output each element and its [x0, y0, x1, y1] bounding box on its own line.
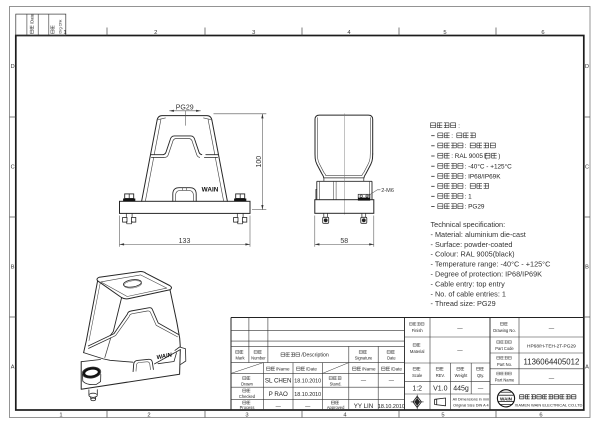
svg-text:: -40°C - +125°C: : -40°C - +125°C — [465, 162, 513, 170]
svg-text:Number: Number — [251, 355, 266, 360]
svg-text:A: A — [585, 365, 589, 371]
svg-text:C: C — [11, 165, 15, 171]
svg-text:—: — — [276, 404, 282, 410]
svg-text:Part No.: Part No. — [497, 362, 512, 367]
svg-text:—: — — [389, 378, 395, 384]
svg-text:6: 6 — [541, 30, 544, 36]
svg-text:PG29: PG29 — [176, 104, 194, 111]
svg-text:- Temperature range: -40°C: - Temperature range: -40°C - +125°C — [431, 260, 551, 269]
svg-text:/Name: /Name — [276, 367, 290, 372]
svg-text:2: 2 — [147, 413, 150, 419]
svg-text:/Date: /Date — [306, 367, 317, 372]
svg-text:133: 133 — [179, 238, 191, 245]
svg-text:- Colour: RAL 9005(black): - Colour: RAL 9005(black) — [431, 250, 515, 259]
svg-text:Qty.: Qty. — [477, 373, 484, 378]
svg-text:Signature: Signature — [355, 355, 373, 360]
svg-text:- No. of cable entries: 1: - No. of cable entries: 1 — [431, 289, 506, 298]
svg-text:D: D — [11, 64, 15, 70]
svg-text:100: 100 — [256, 156, 263, 168]
svg-text:/Date: /Date — [30, 13, 35, 24]
svg-text:5: 5 — [441, 413, 444, 419]
svg-text:Part Code: Part Code — [495, 346, 514, 351]
svg-text:C: C — [585, 165, 589, 171]
svg-text:Finish: Finish — [412, 328, 424, 333]
svg-text:—: — — [478, 386, 484, 392]
svg-text:—: — — [361, 378, 367, 384]
svg-text:Part Name: Part Name — [495, 378, 515, 383]
svg-text:Date: Date — [387, 355, 396, 360]
svg-text:18.10.2010: 18.10.2010 — [378, 404, 405, 410]
svg-text:SL CHEN: SL CHEN — [265, 378, 292, 385]
svg-text:A: A — [11, 365, 15, 371]
svg-text:WAIN: WAIN — [500, 397, 513, 402]
svg-text:—: — — [305, 404, 311, 410]
svg-text:1:2: 1:2 — [412, 386, 422, 393]
svg-text:3: 3 — [245, 413, 248, 419]
svg-text:445g: 445g — [453, 386, 469, 393]
svg-text:- Degree of protection: IP: - Degree of protection: IP68/IP69K — [431, 270, 543, 279]
svg-text:2: 2 — [154, 30, 157, 36]
svg-text::: : — [451, 133, 453, 140]
svg-text::: : — [465, 184, 467, 191]
svg-text:- Thread size: PG29: - Thread size: PG29 — [431, 299, 496, 308]
svg-text:V1.0: V1.0 — [433, 386, 448, 393]
svg-text:—: — — [549, 326, 555, 332]
svg-text:3: 3 — [252, 30, 255, 36]
svg-text:Mark: Mark — [235, 355, 245, 360]
svg-text:Technical specification:: Technical specification: — [431, 220, 506, 229]
svg-text:B: B — [585, 265, 589, 271]
svg-text::: : — [465, 143, 467, 150]
svg-text:18.10.2010: 18.10.2010 — [294, 392, 321, 398]
svg-text:: PG29: : PG29 — [465, 204, 485, 211]
svg-text:/Description: /Description — [301, 353, 329, 359]
svg-text:: RAL 9005 (: : RAL 9005 ( — [451, 153, 488, 160]
svg-text:18.10.2010: 18.10.2010 — [294, 379, 321, 385]
svg-text:58: 58 — [340, 238, 348, 245]
svg-text:Drg Chk: Drg Chk — [59, 19, 63, 33]
svg-text:WAIN: WAIN — [202, 187, 219, 194]
svg-text:D: D — [585, 64, 589, 70]
svg-text:Drawing No.: Drawing No. — [493, 328, 516, 333]
svg-text:—: — — [549, 376, 555, 382]
svg-text:Material: Material — [410, 349, 425, 354]
svg-text:- Material: aluminium die-c: - Material: aluminium die-cast — [431, 230, 526, 239]
svg-text:Process: Process — [240, 405, 255, 410]
svg-text:Original Size DIN A 4: Original Size DIN A 4 — [453, 404, 488, 408]
svg-text:XIAMEN WAIN ELECTRICAL CO.LTD: XIAMEN WAIN ELECTRICAL CO.LTD — [515, 402, 583, 407]
svg-text:All Dimensions in mm: All Dimensions in mm — [453, 397, 490, 401]
svg-text:6: 6 — [539, 413, 542, 419]
svg-text:Approved: Approved — [327, 405, 345, 410]
svg-text:5: 5 — [443, 30, 446, 36]
svg-text:Checked: Checked — [239, 394, 256, 399]
svg-text:Stand.: Stand. — [330, 382, 342, 387]
svg-text:Drawn: Drawn — [241, 382, 254, 387]
svg-text:- Cable entry: top entry: - Cable entry: top entry — [431, 279, 506, 288]
svg-text:HP68/H-TEH-2T-PG29: HP68/H-TEH-2T-PG29 — [527, 344, 576, 350]
svg-text:2-M6: 2-M6 — [381, 188, 394, 194]
svg-text:P RAO: P RAO — [269, 391, 288, 398]
svg-text:REV.: REV. — [436, 373, 445, 378]
svg-text:—: — — [457, 326, 463, 332]
svg-text:1: 1 — [59, 413, 62, 419]
svg-text:Weight: Weight — [455, 373, 469, 378]
svg-text:—: — — [457, 348, 463, 354]
svg-text:/Name: /Name — [362, 367, 376, 372]
svg-text:YY LIN: YY LIN — [354, 403, 374, 410]
svg-text:): ) — [498, 153, 500, 160]
svg-text:: IP68/IP69K: : IP68/IP69K — [465, 174, 502, 181]
svg-text:: 1: : 1 — [465, 194, 473, 201]
svg-text:Scale: Scale — [412, 373, 423, 378]
svg-text:1136064405012: 1136064405012 — [524, 357, 580, 366]
svg-text:/Date: /Date — [391, 367, 402, 372]
svg-text:- Surface: powder-coated: - Surface: powder-coated — [431, 240, 513, 249]
svg-text:B: B — [11, 265, 15, 271]
